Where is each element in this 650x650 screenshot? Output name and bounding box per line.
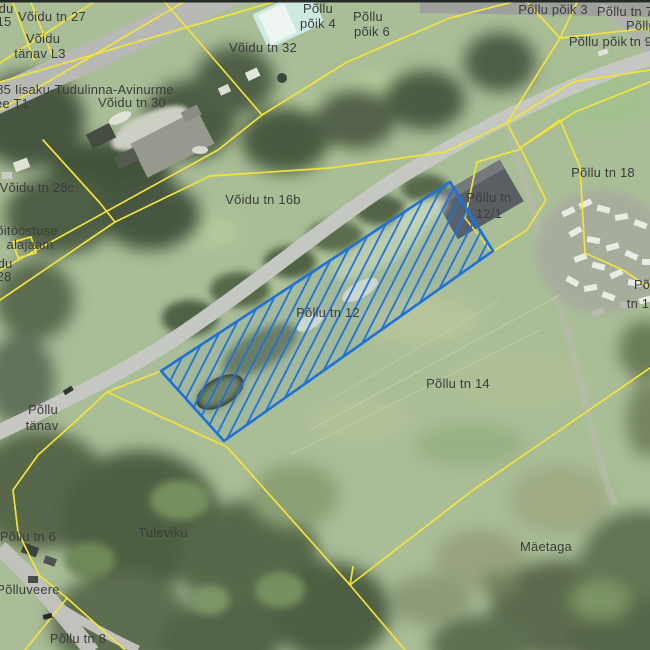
map-labels-layer: du15Võidu tn 27Võidutänav L385 Iisaku-Tu… xyxy=(0,0,650,650)
map-label: õitööstuse xyxy=(0,224,58,238)
map-label: põik 4 xyxy=(300,17,336,31)
map-label: Võidu tn 27 xyxy=(18,10,86,24)
map-label: Mäetaga xyxy=(520,540,572,554)
map-label: Põllu xyxy=(626,19,650,33)
map-label: Põ xyxy=(634,278,650,292)
map-label: 15 xyxy=(0,15,11,29)
map-label: Põllu tn 6 xyxy=(0,530,56,544)
map-label: Põllu põik xyxy=(569,35,627,49)
map-label: alajaam xyxy=(7,238,54,252)
map-label: Põllu xyxy=(353,10,383,24)
map-label: Põllu tn 14 xyxy=(426,377,490,391)
map-label: tänav L3 xyxy=(14,47,65,61)
map-label: Põllu tn 7 xyxy=(597,5,650,19)
map-label: Põllu xyxy=(28,403,58,417)
map-label: Põllu tn 12 xyxy=(296,306,360,320)
map-label: Võidu tn 16b xyxy=(225,193,300,207)
map-label: põik 6 xyxy=(354,25,390,39)
map-label: Põllu tn 18 xyxy=(571,166,635,180)
map-label: tn 1 xyxy=(627,297,649,311)
map-label: Võidu xyxy=(26,32,60,46)
map-label: Põllu xyxy=(303,2,333,16)
map-label: Tuleviku xyxy=(138,526,188,540)
map-label: Põlluveere xyxy=(0,583,60,597)
map-label: Põllu tn xyxy=(467,191,512,205)
map-label: 28 xyxy=(0,270,11,284)
map-label: Põllu põik 3 xyxy=(518,3,588,17)
map-label: Võidu tn 32 xyxy=(229,41,297,55)
map-label: Võidu tn 28c xyxy=(0,181,74,195)
map-label: tänav xyxy=(26,419,59,433)
map-viewport[interactable]: du15Võidu tn 27Võidutänav L385 Iisaku-Tu… xyxy=(0,0,650,650)
map-label: Võidu tn 30 xyxy=(98,96,166,110)
map-label: Põllu tn 8 xyxy=(50,632,106,646)
map-label: 12/1 xyxy=(476,207,502,221)
map-label: ee T1 xyxy=(0,97,29,111)
map-label: tn 9 xyxy=(630,35,650,49)
